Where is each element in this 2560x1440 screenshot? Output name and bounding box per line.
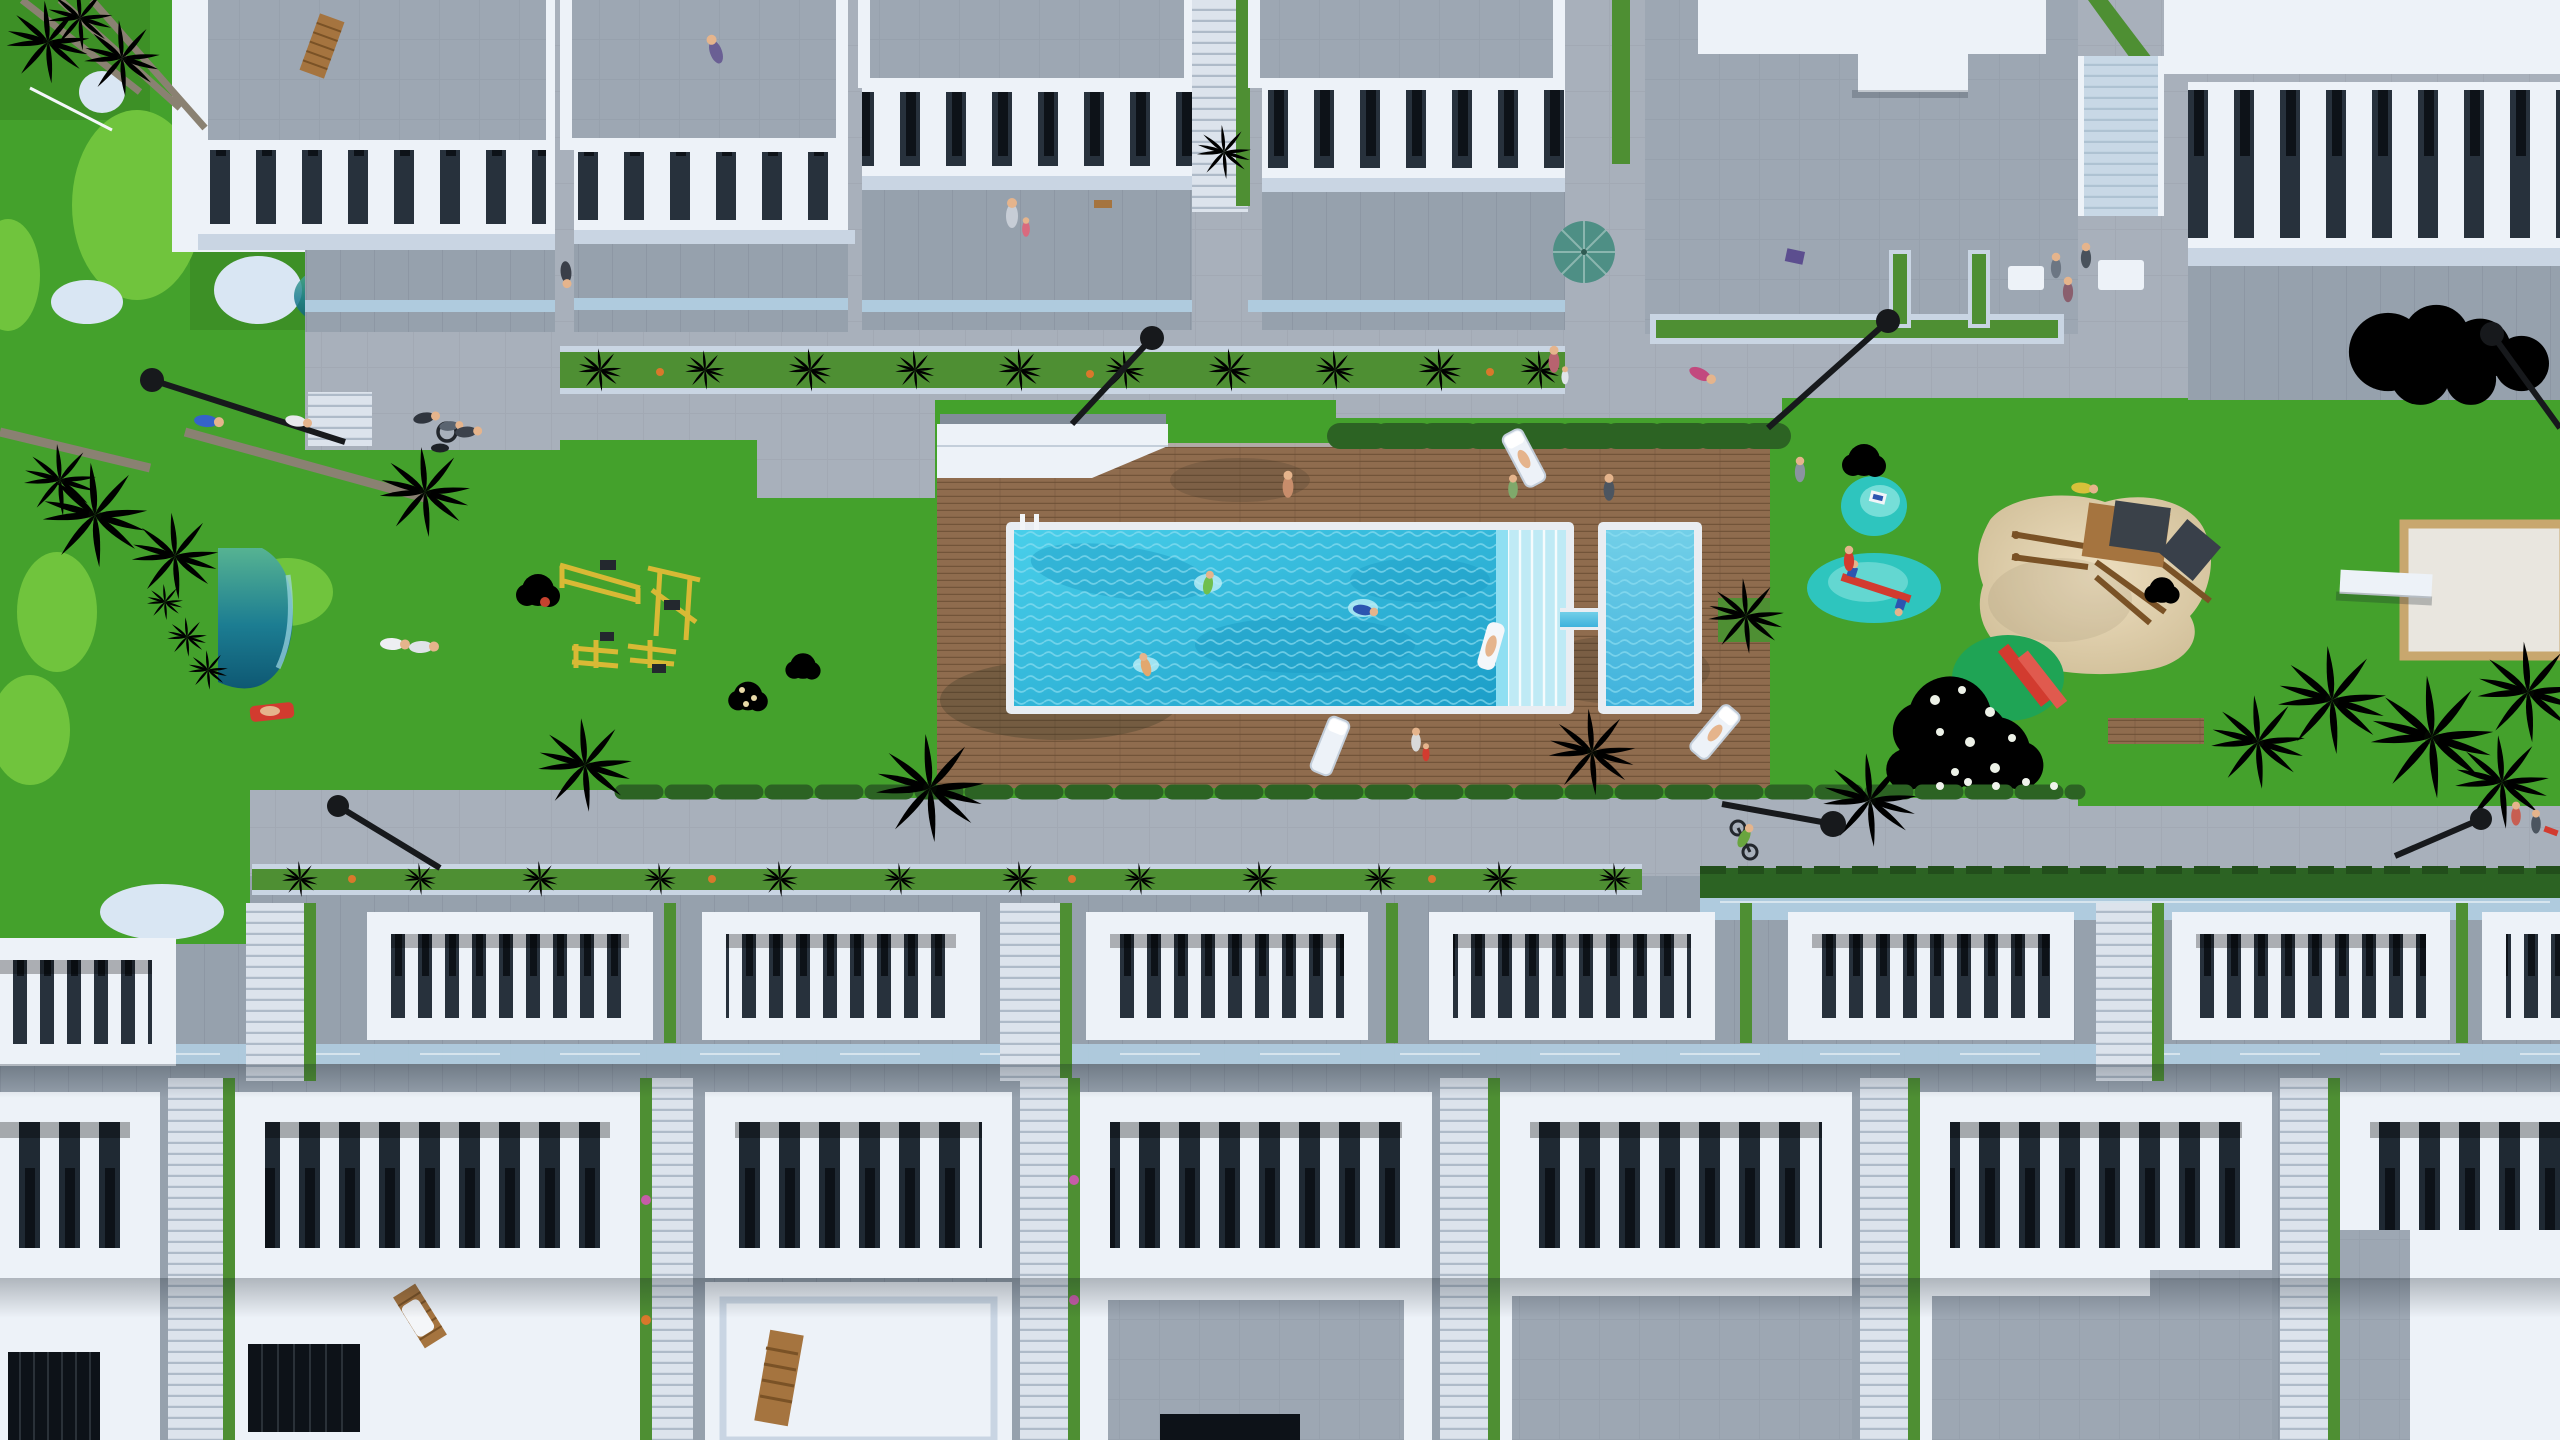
bench: [1094, 200, 1112, 208]
top-building-t4: [1248, 0, 1565, 330]
balustrade-band: [574, 150, 848, 220]
pond-small: [51, 280, 123, 324]
solar-panels: [248, 1344, 360, 1432]
child-deck: [1422, 743, 1429, 761]
person-seated: [2051, 253, 2061, 279]
green-strip: [1612, 0, 1630, 164]
upper-planter-strip: [560, 346, 1565, 394]
balustrade-band: [2188, 88, 2560, 238]
person-mother: [1549, 346, 1560, 373]
person-deck-sitting: [1411, 728, 1421, 752]
person-playground: [1844, 546, 1854, 572]
scene-canvas: Aerial top-down 3D architectural renderi…: [0, 0, 2560, 1440]
patio-table: [2008, 266, 2044, 290]
person-walking: [1795, 457, 1805, 483]
pergola-block: [0, 938, 176, 1066]
balustrade-band: [198, 148, 546, 224]
pergola-block: [1086, 912, 1368, 1040]
person-corner: [2531, 810, 2541, 834]
person-child: [1561, 366, 1568, 384]
aerial-render: Aerial top-down 3D architectural renderi…: [0, 0, 2560, 1440]
main-pool: [1006, 514, 1574, 714]
top-building-t3: [858, 0, 1196, 330]
pergola-block: [1500, 1092, 1852, 1278]
person-standing: [2081, 243, 2091, 269]
pond-small: [100, 884, 224, 940]
person-deck: [1604, 474, 1615, 501]
person-deck: [1508, 475, 1518, 499]
pergola-slab: [1858, 46, 1968, 92]
balustrade-band: [1262, 88, 1565, 168]
row2-pergola-frames: [0, 1092, 2560, 1278]
pergola-block: [702, 912, 980, 1040]
pergola-block: [1080, 1092, 1432, 1278]
pergola-block: [1429, 912, 1715, 1040]
pergola-block: [1920, 1092, 2272, 1278]
person-child: [1022, 217, 1030, 237]
roof-block: [2340, 1230, 2560, 1440]
balustrade-band: [862, 90, 1192, 166]
person-corner: [2511, 802, 2521, 826]
wooden-path: [2108, 718, 2204, 744]
person-seated: [2063, 277, 2073, 303]
solar-panels: [8, 1352, 100, 1440]
glass-rail: [305, 300, 555, 312]
pergola-block: [367, 912, 653, 1040]
pergola-block: [0, 1092, 160, 1278]
planter-trough: [1656, 320, 2058, 338]
dog: [431, 444, 449, 453]
pergola-block: [2482, 912, 2560, 1040]
pergola-block: [2172, 912, 2450, 1040]
pergola-block: [705, 1092, 1012, 1278]
pergola-block: [235, 1092, 640, 1278]
patio-umbrella: [1553, 221, 1615, 283]
patio-table: [2098, 260, 2144, 290]
top-stair-gap: [1192, 0, 1251, 212]
person-deck: [1283, 471, 1294, 498]
pergola-block: [1788, 912, 2074, 1040]
solar-panels: [1160, 1414, 1300, 1440]
south-planter-strip: [252, 861, 1642, 897]
top-building-t2: [560, 0, 855, 332]
person-mother: [1006, 198, 1018, 228]
flower-clump: [540, 597, 550, 607]
